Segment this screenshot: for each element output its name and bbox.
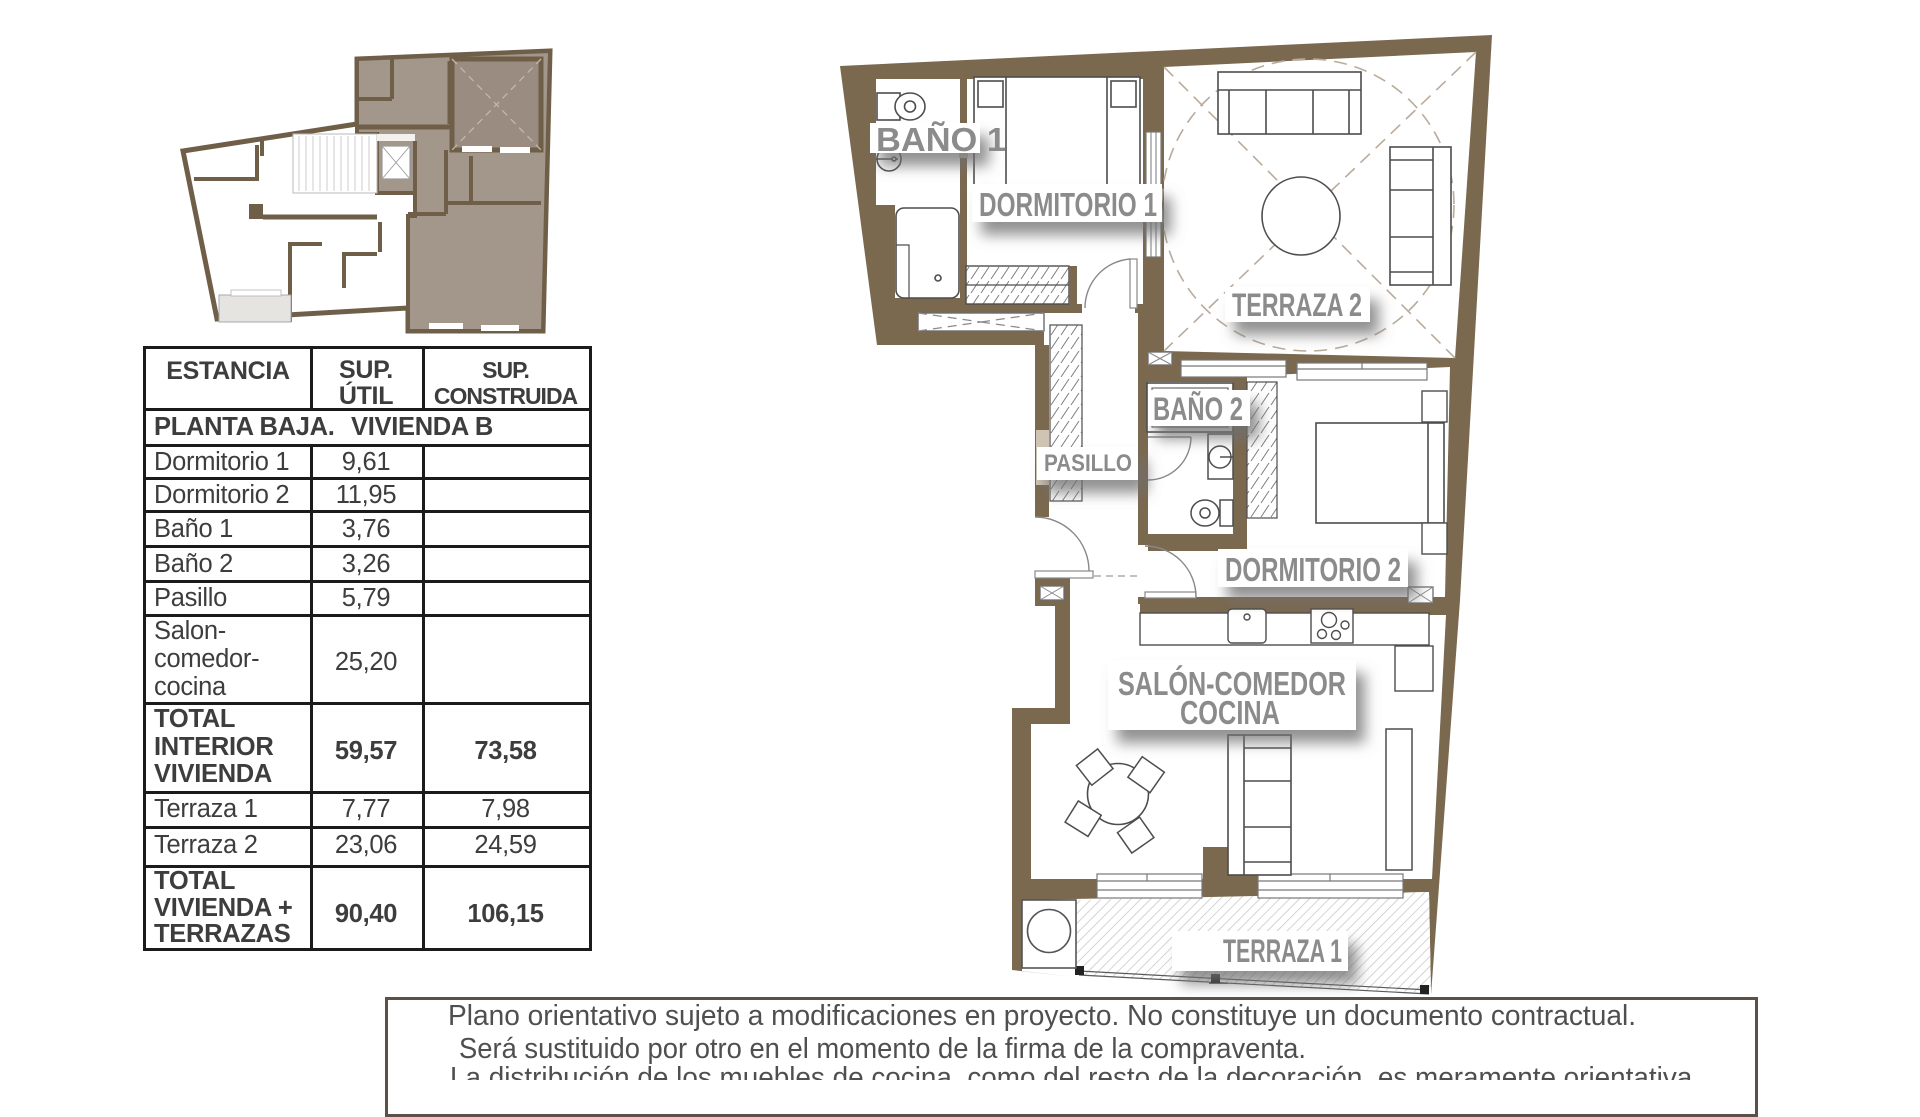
svg-text:BAÑO 1: BAÑO 1 [876, 121, 1006, 158]
svg-text:TERRAZA 1: TERRAZA 1 [1223, 933, 1342, 969]
svg-text:DORMITORIO 1: DORMITORIO 1 [979, 186, 1157, 223]
svg-text:TERRAZA 2: TERRAZA 2 [1232, 287, 1362, 323]
svg-text:Plano orientativo sujeto a mod: Plano orientativo sujeto a modificacione… [448, 1000, 1636, 1032]
svg-text:Será sustituido por otro en el: Será sustituido por otro en el momento d… [459, 1033, 1306, 1065]
svg-text:DORMITORIO 2: DORMITORIO 2 [1225, 551, 1401, 588]
svg-text:BAÑO 2: BAÑO 2 [1153, 391, 1243, 427]
svg-text:La distribución de los muebles: La distribución de los muebles de cocina… [450, 1062, 1700, 1080]
svg-text:PASILLO: PASILLO [1044, 450, 1132, 477]
svg-text:COCINA: COCINA [1180, 694, 1280, 731]
